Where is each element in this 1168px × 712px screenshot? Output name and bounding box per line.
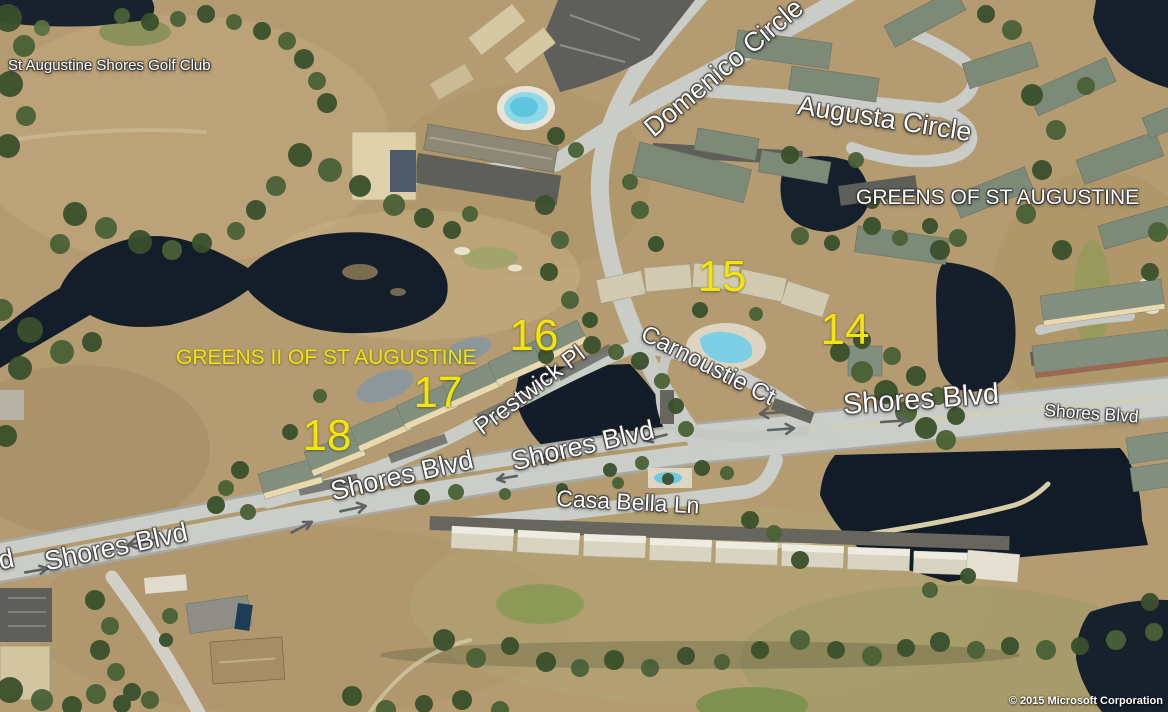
- pond-island: [390, 288, 406, 296]
- condo-building: [692, 263, 740, 290]
- golf-green: [462, 247, 518, 269]
- sand-bunker: [508, 265, 522, 272]
- golf-green: [496, 584, 584, 624]
- building: [0, 390, 24, 420]
- aerial-map[interactable]: St Augustine Shores Golf Club Domenico C…: [0, 0, 1168, 712]
- sand-bunker: [454, 247, 470, 255]
- pond-island: [342, 264, 378, 280]
- condo-building: [644, 264, 692, 292]
- aerial-imagery: [0, 0, 1168, 712]
- parking-lot: [0, 588, 52, 642]
